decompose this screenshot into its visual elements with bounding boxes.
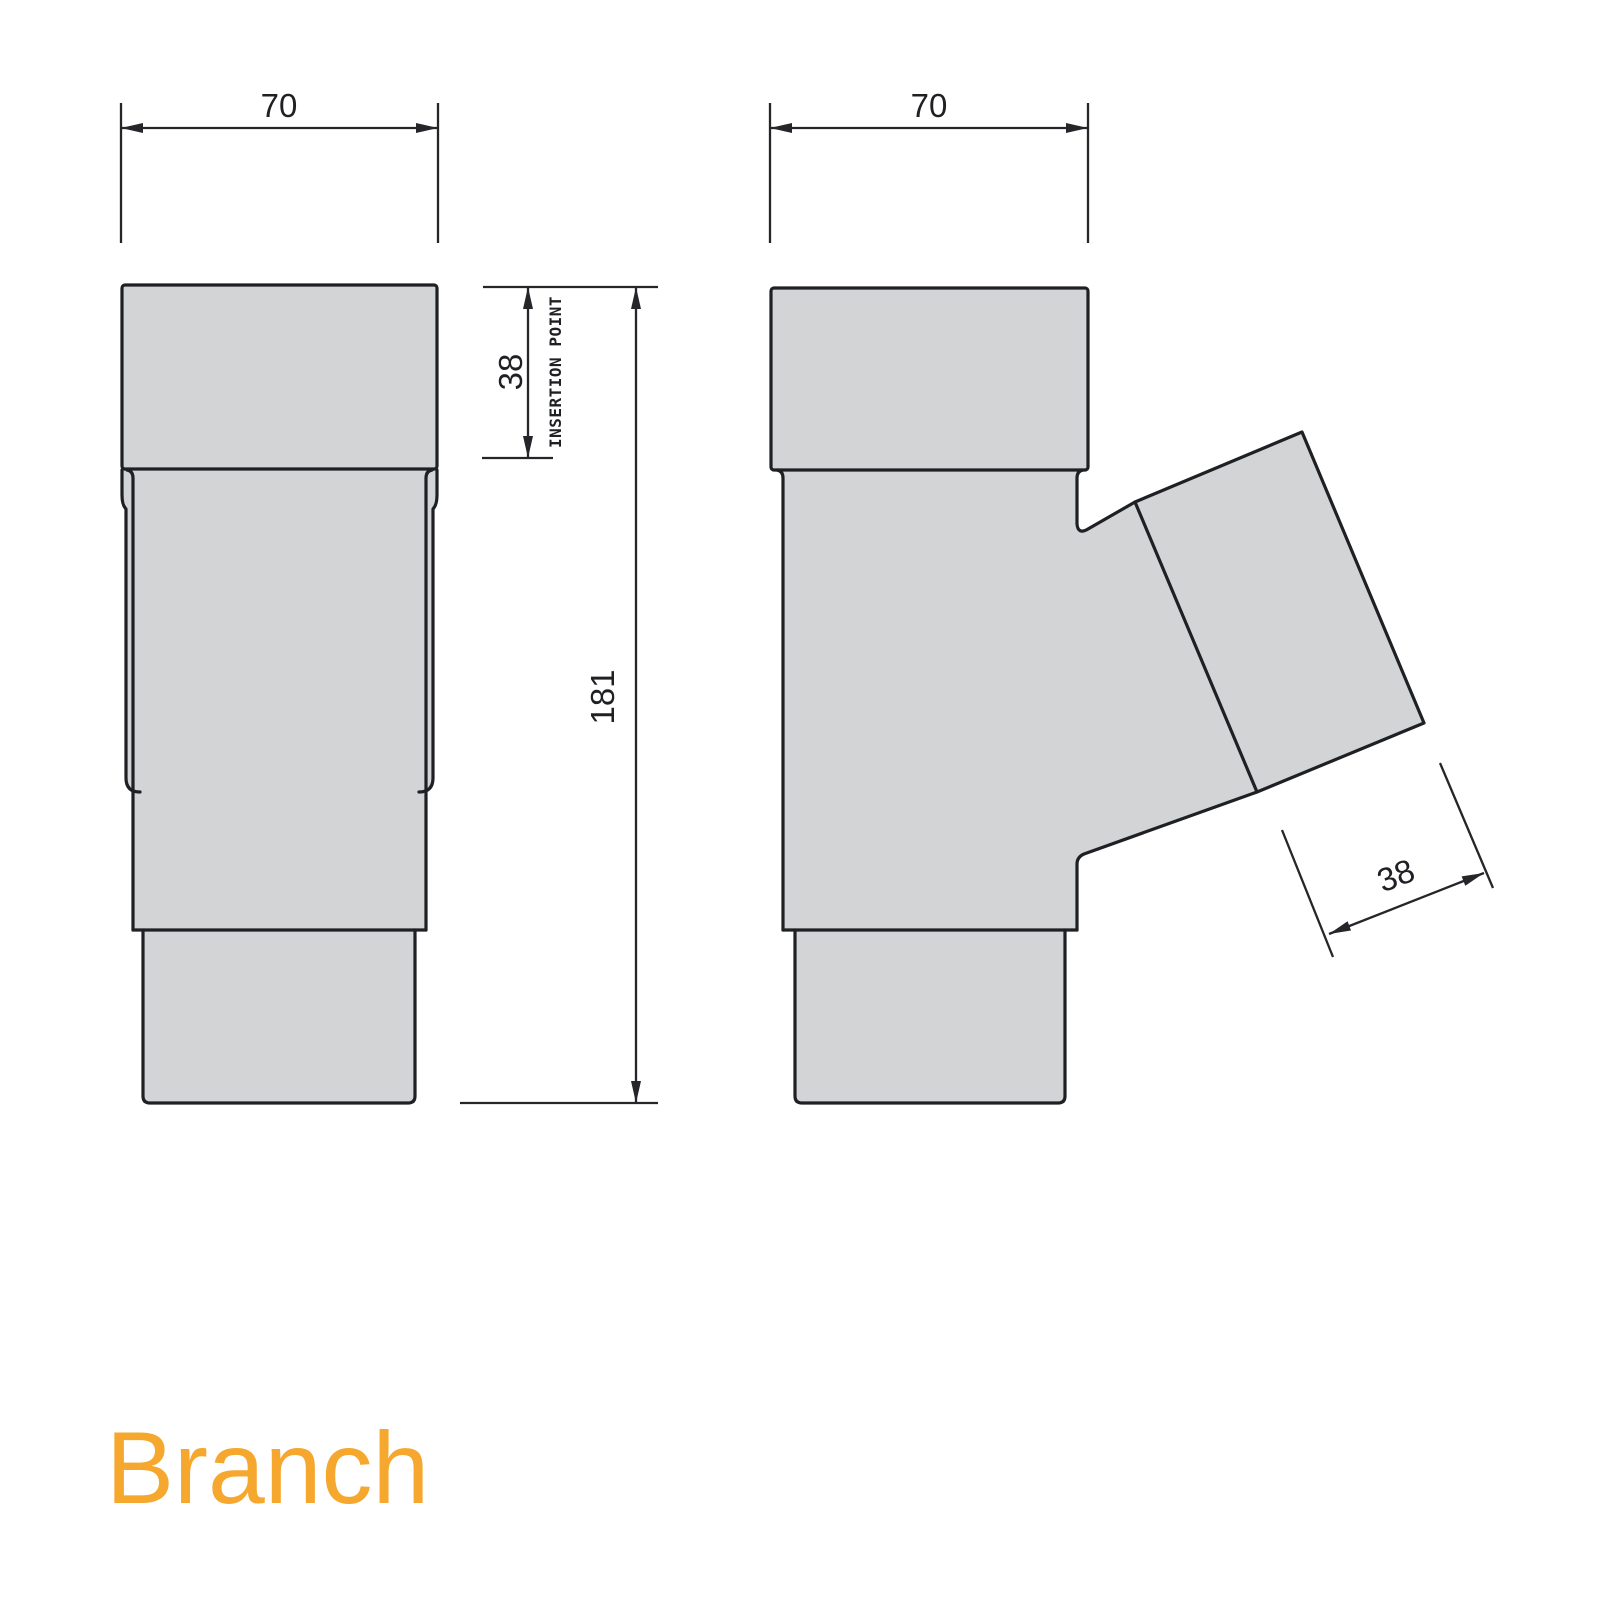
product-title: Branch — [106, 1411, 429, 1525]
insertion-point-label: INSERTION POINT — [546, 296, 565, 448]
dimension-value: 38 — [492, 354, 529, 391]
dimension-value: 70 — [911, 87, 948, 124]
front-view — [122, 285, 437, 1103]
front-view-silhouette — [122, 285, 437, 1103]
branch-fitting-drawing: 70 38 INSERTION POINT 181 — [0, 0, 1600, 1600]
dimension-value: 181 — [584, 669, 621, 724]
dimension-value: 70 — [261, 87, 298, 124]
technical-drawing-page: 70 38 INSERTION POINT 181 — [0, 0, 1600, 1600]
